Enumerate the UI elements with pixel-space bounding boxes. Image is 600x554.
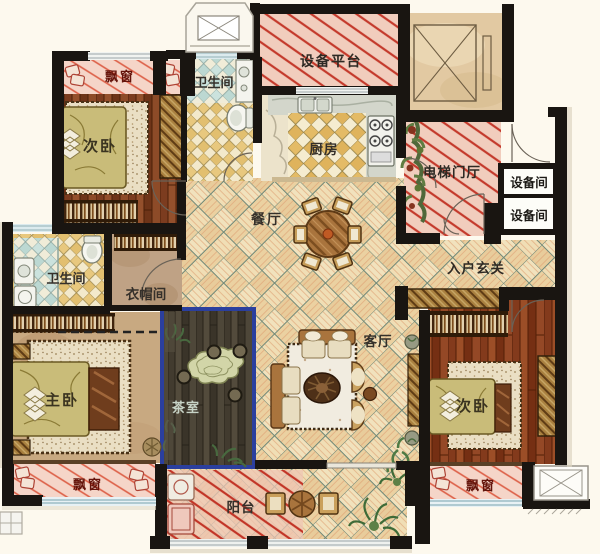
svg-text:飘窗: 飘窗 — [466, 478, 496, 493]
svg-text:茶室: 茶室 — [172, 400, 200, 415]
svg-text:餐厅: 餐厅 — [250, 211, 283, 227]
svg-text:卫生间: 卫生间 — [46, 271, 85, 286]
svg-text:衣帽间: 衣帽间 — [126, 286, 167, 302]
svg-text:阳台: 阳台 — [227, 499, 256, 515]
svg-text:设备平台: 设备平台 — [300, 53, 362, 69]
svg-text:主卧: 主卧 — [45, 391, 79, 409]
svg-text:厨房: 厨房 — [310, 141, 339, 157]
svg-text:电梯门厅: 电梯门厅 — [423, 164, 481, 180]
svg-text:设备间: 设备间 — [510, 175, 548, 190]
svg-text:卫生间: 卫生间 — [194, 75, 233, 90]
svg-text:设备间: 设备间 — [510, 208, 548, 223]
svg-text:次卧: 次卧 — [83, 137, 117, 155]
svg-text:飘窗: 飘窗 — [73, 477, 103, 492]
svg-text:飘窗: 飘窗 — [105, 69, 135, 84]
svg-text:入户玄关: 入户玄关 — [447, 260, 505, 276]
svg-text:次卧: 次卧 — [456, 397, 490, 415]
svg-text:客厅: 客厅 — [363, 333, 393, 349]
